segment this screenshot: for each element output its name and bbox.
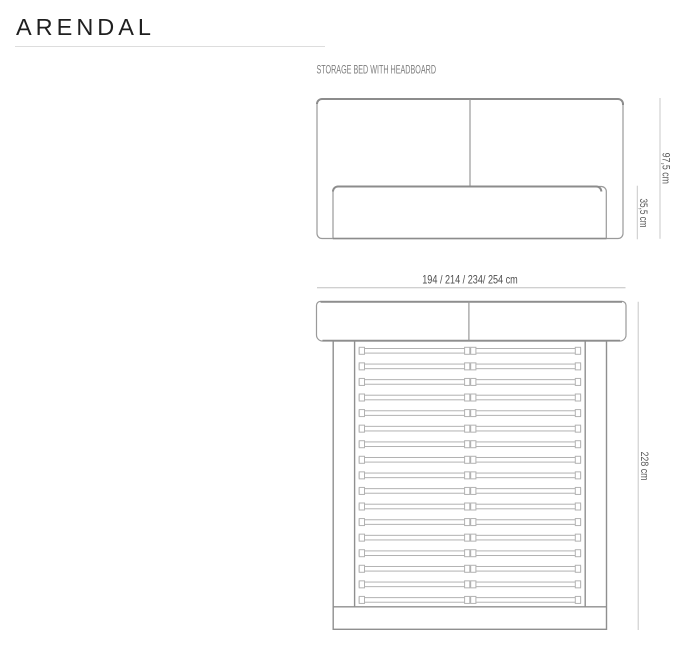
svg-text:ARENDAL: ARENDAL	[16, 14, 155, 40]
svg-text:35,5 cm: 35,5 cm	[637, 199, 649, 228]
svg-text:228 cm: 228 cm	[638, 452, 650, 481]
svg-text:194 / 214 / 234/ 254 cm: 194 / 214 / 234/ 254 cm	[422, 273, 518, 287]
svg-text:STORAGE BED WITH HEADBOARD: STORAGE BED WITH HEADBOARD	[317, 63, 437, 77]
svg-text:97,5 cm: 97,5 cm	[660, 153, 672, 184]
